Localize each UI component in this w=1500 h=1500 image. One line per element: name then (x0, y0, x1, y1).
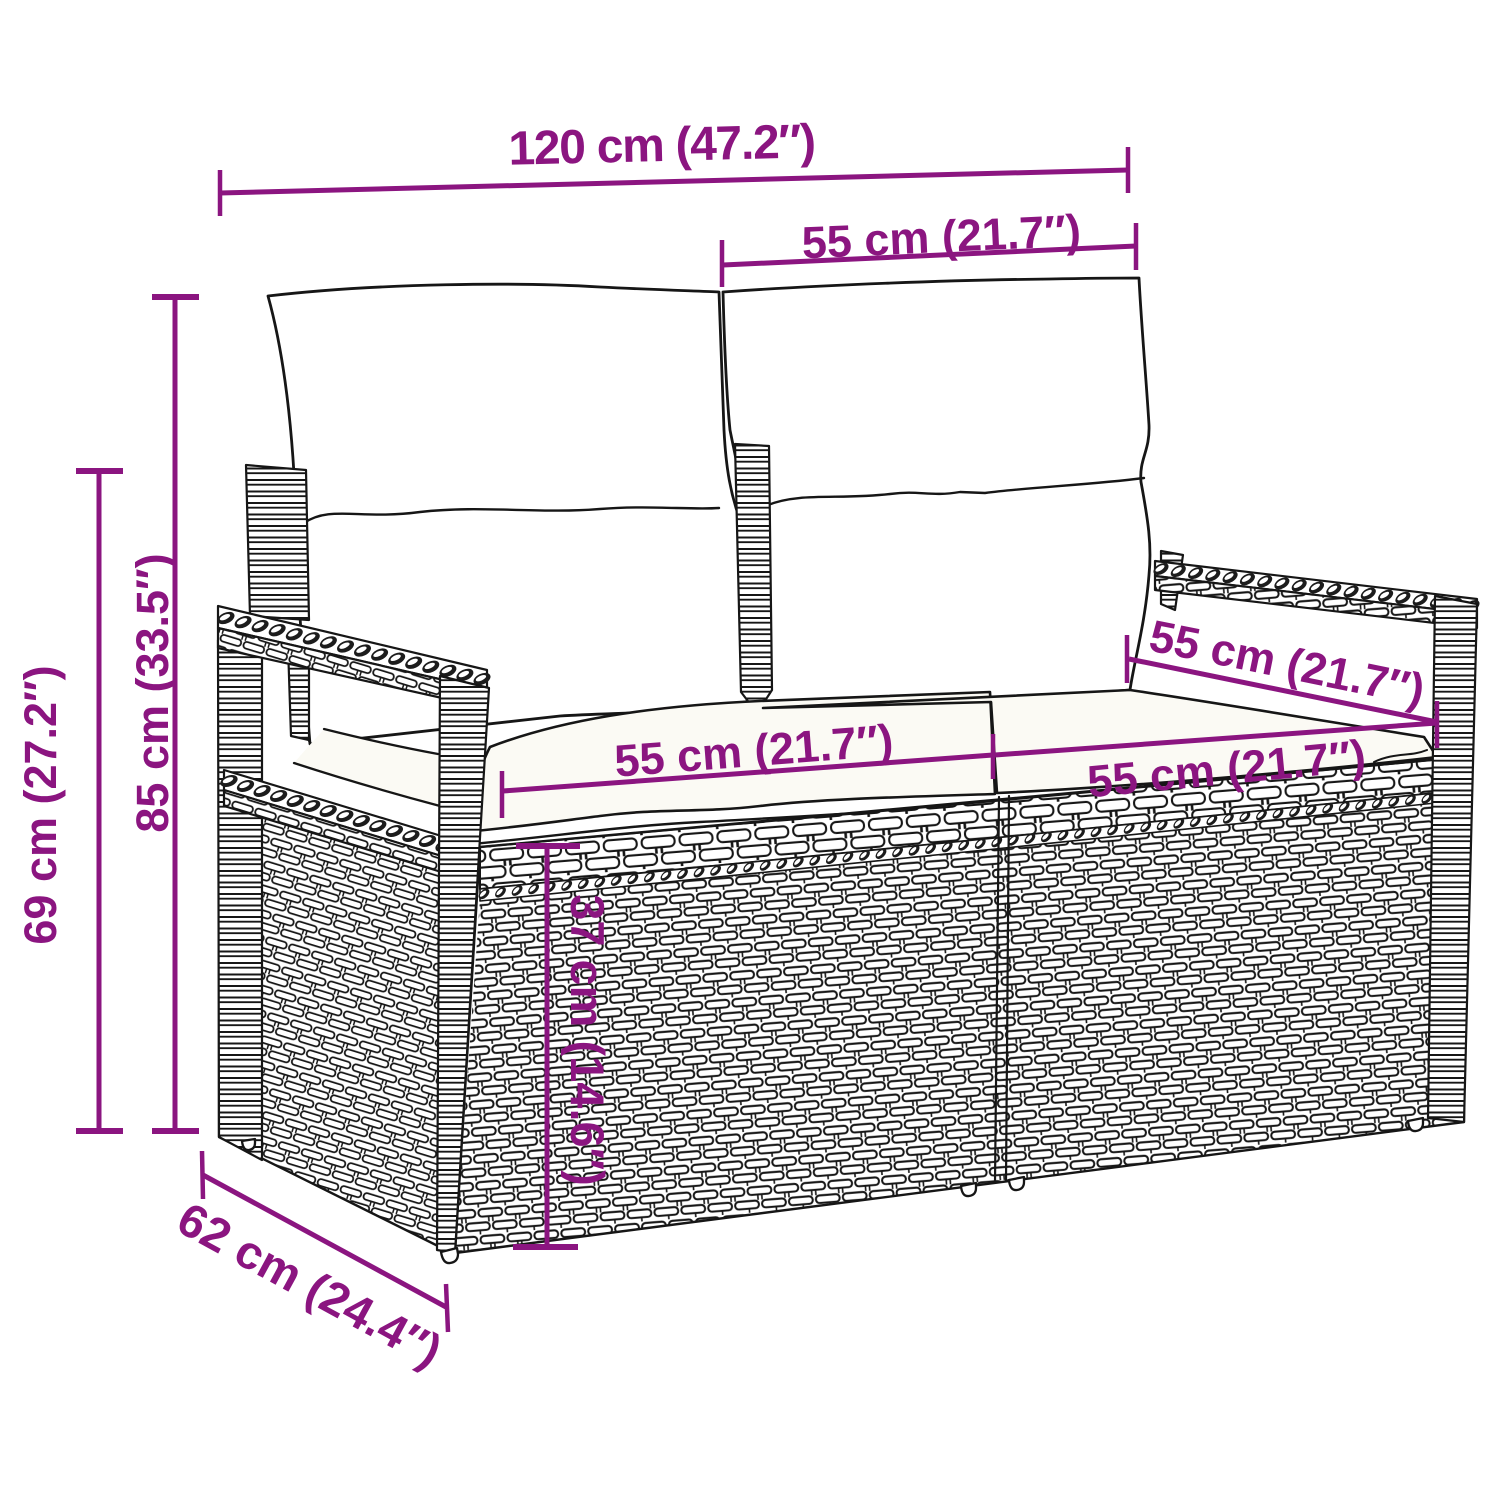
svg-text:69 cm (27.2″): 69 cm (27.2″) (15, 665, 66, 944)
svg-text:37 cm (14.6″): 37 cm (14.6″) (561, 894, 614, 1186)
svg-text:120 cm (47.2″): 120 cm (47.2″) (508, 115, 816, 175)
svg-text:85 cm (33.5″): 85 cm (33.5″) (127, 553, 178, 832)
